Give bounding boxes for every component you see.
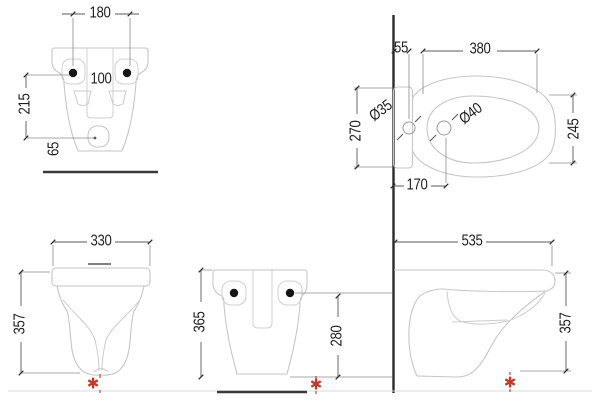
extension-lines <box>26 18 130 138</box>
mounting-hole-left <box>230 289 238 297</box>
dimension-lines <box>201 270 338 377</box>
dimension-lines <box>21 242 150 373</box>
dimension-lines <box>395 242 566 371</box>
asterisk-icon: ✱ <box>310 378 323 393</box>
side-view <box>393 240 571 392</box>
dim-label-rear-holes-width: 180 <box>90 5 111 21</box>
mounting-hole-right <box>286 289 294 297</box>
leader-dot <box>94 137 97 140</box>
front-profile <box>417 291 546 377</box>
dimension-lines <box>26 14 139 138</box>
dim-label-rear-drain-offset: 65 <box>46 142 62 156</box>
dim-label-back-holes-height: 280 <box>329 326 345 347</box>
dimension-ticks <box>393 240 569 374</box>
mounting-hole-right <box>123 69 131 77</box>
dim-label-top-wall-offset: 55 <box>394 40 408 56</box>
dim-label-rear-inlet-spacing: 100 <box>91 71 112 87</box>
rear-view <box>199 268 392 394</box>
rim-shelf <box>394 270 555 291</box>
fixture-outline <box>52 48 148 151</box>
back-profile <box>409 289 443 376</box>
dim-label-top-bowl-width: 245 <box>566 119 582 140</box>
dim-label-side-height: 357 <box>558 313 574 334</box>
mounting-hole-left <box>69 69 77 77</box>
center-channel <box>253 270 272 328</box>
dim-label-side-depth: 535 <box>462 233 483 249</box>
body-outline <box>57 286 144 375</box>
dim-label-front-width: 330 <box>91 233 112 249</box>
body-outline <box>213 270 307 374</box>
asterisk-icon: ✱ <box>504 376 517 391</box>
rim-underside <box>443 289 546 292</box>
extension-lines <box>21 245 150 373</box>
bowl-outline <box>427 96 539 163</box>
bowl-section <box>447 291 545 324</box>
dimension-ticks <box>199 268 341 380</box>
dimension-ticks <box>19 240 153 376</box>
dim-label-rear-holes-height: 215 <box>17 94 33 115</box>
extension-lines <box>520 245 571 371</box>
extension-lines <box>201 270 392 377</box>
dim-label-top-bowl-length: 380 <box>470 41 491 57</box>
dim-label-tap-distance: 170 <box>407 177 428 193</box>
tap-hole-40 <box>437 121 451 135</box>
asterisk-icon: ✱ <box>87 377 100 392</box>
dim-label-top-back-width: 270 <box>348 121 364 142</box>
drain-hole <box>88 126 109 147</box>
rim-top <box>52 268 150 286</box>
rear-mounting-view <box>24 12 158 172</box>
water-inlets <box>74 91 126 106</box>
rim-outline <box>413 76 556 177</box>
faucet-hole-35 <box>403 122 415 134</box>
front-view <box>19 240 153 393</box>
dim-label-back-height: 365 <box>192 312 208 333</box>
bidet-dimension-drawing: 180 100 215 65 55 380 Ø35 Ø40 270 245 17… <box>0 0 600 414</box>
dim-label-front-height: 357 <box>12 314 28 335</box>
dimension-ticks <box>24 12 133 141</box>
bottom-notch <box>94 369 108 373</box>
drawing-canvas <box>0 0 600 414</box>
